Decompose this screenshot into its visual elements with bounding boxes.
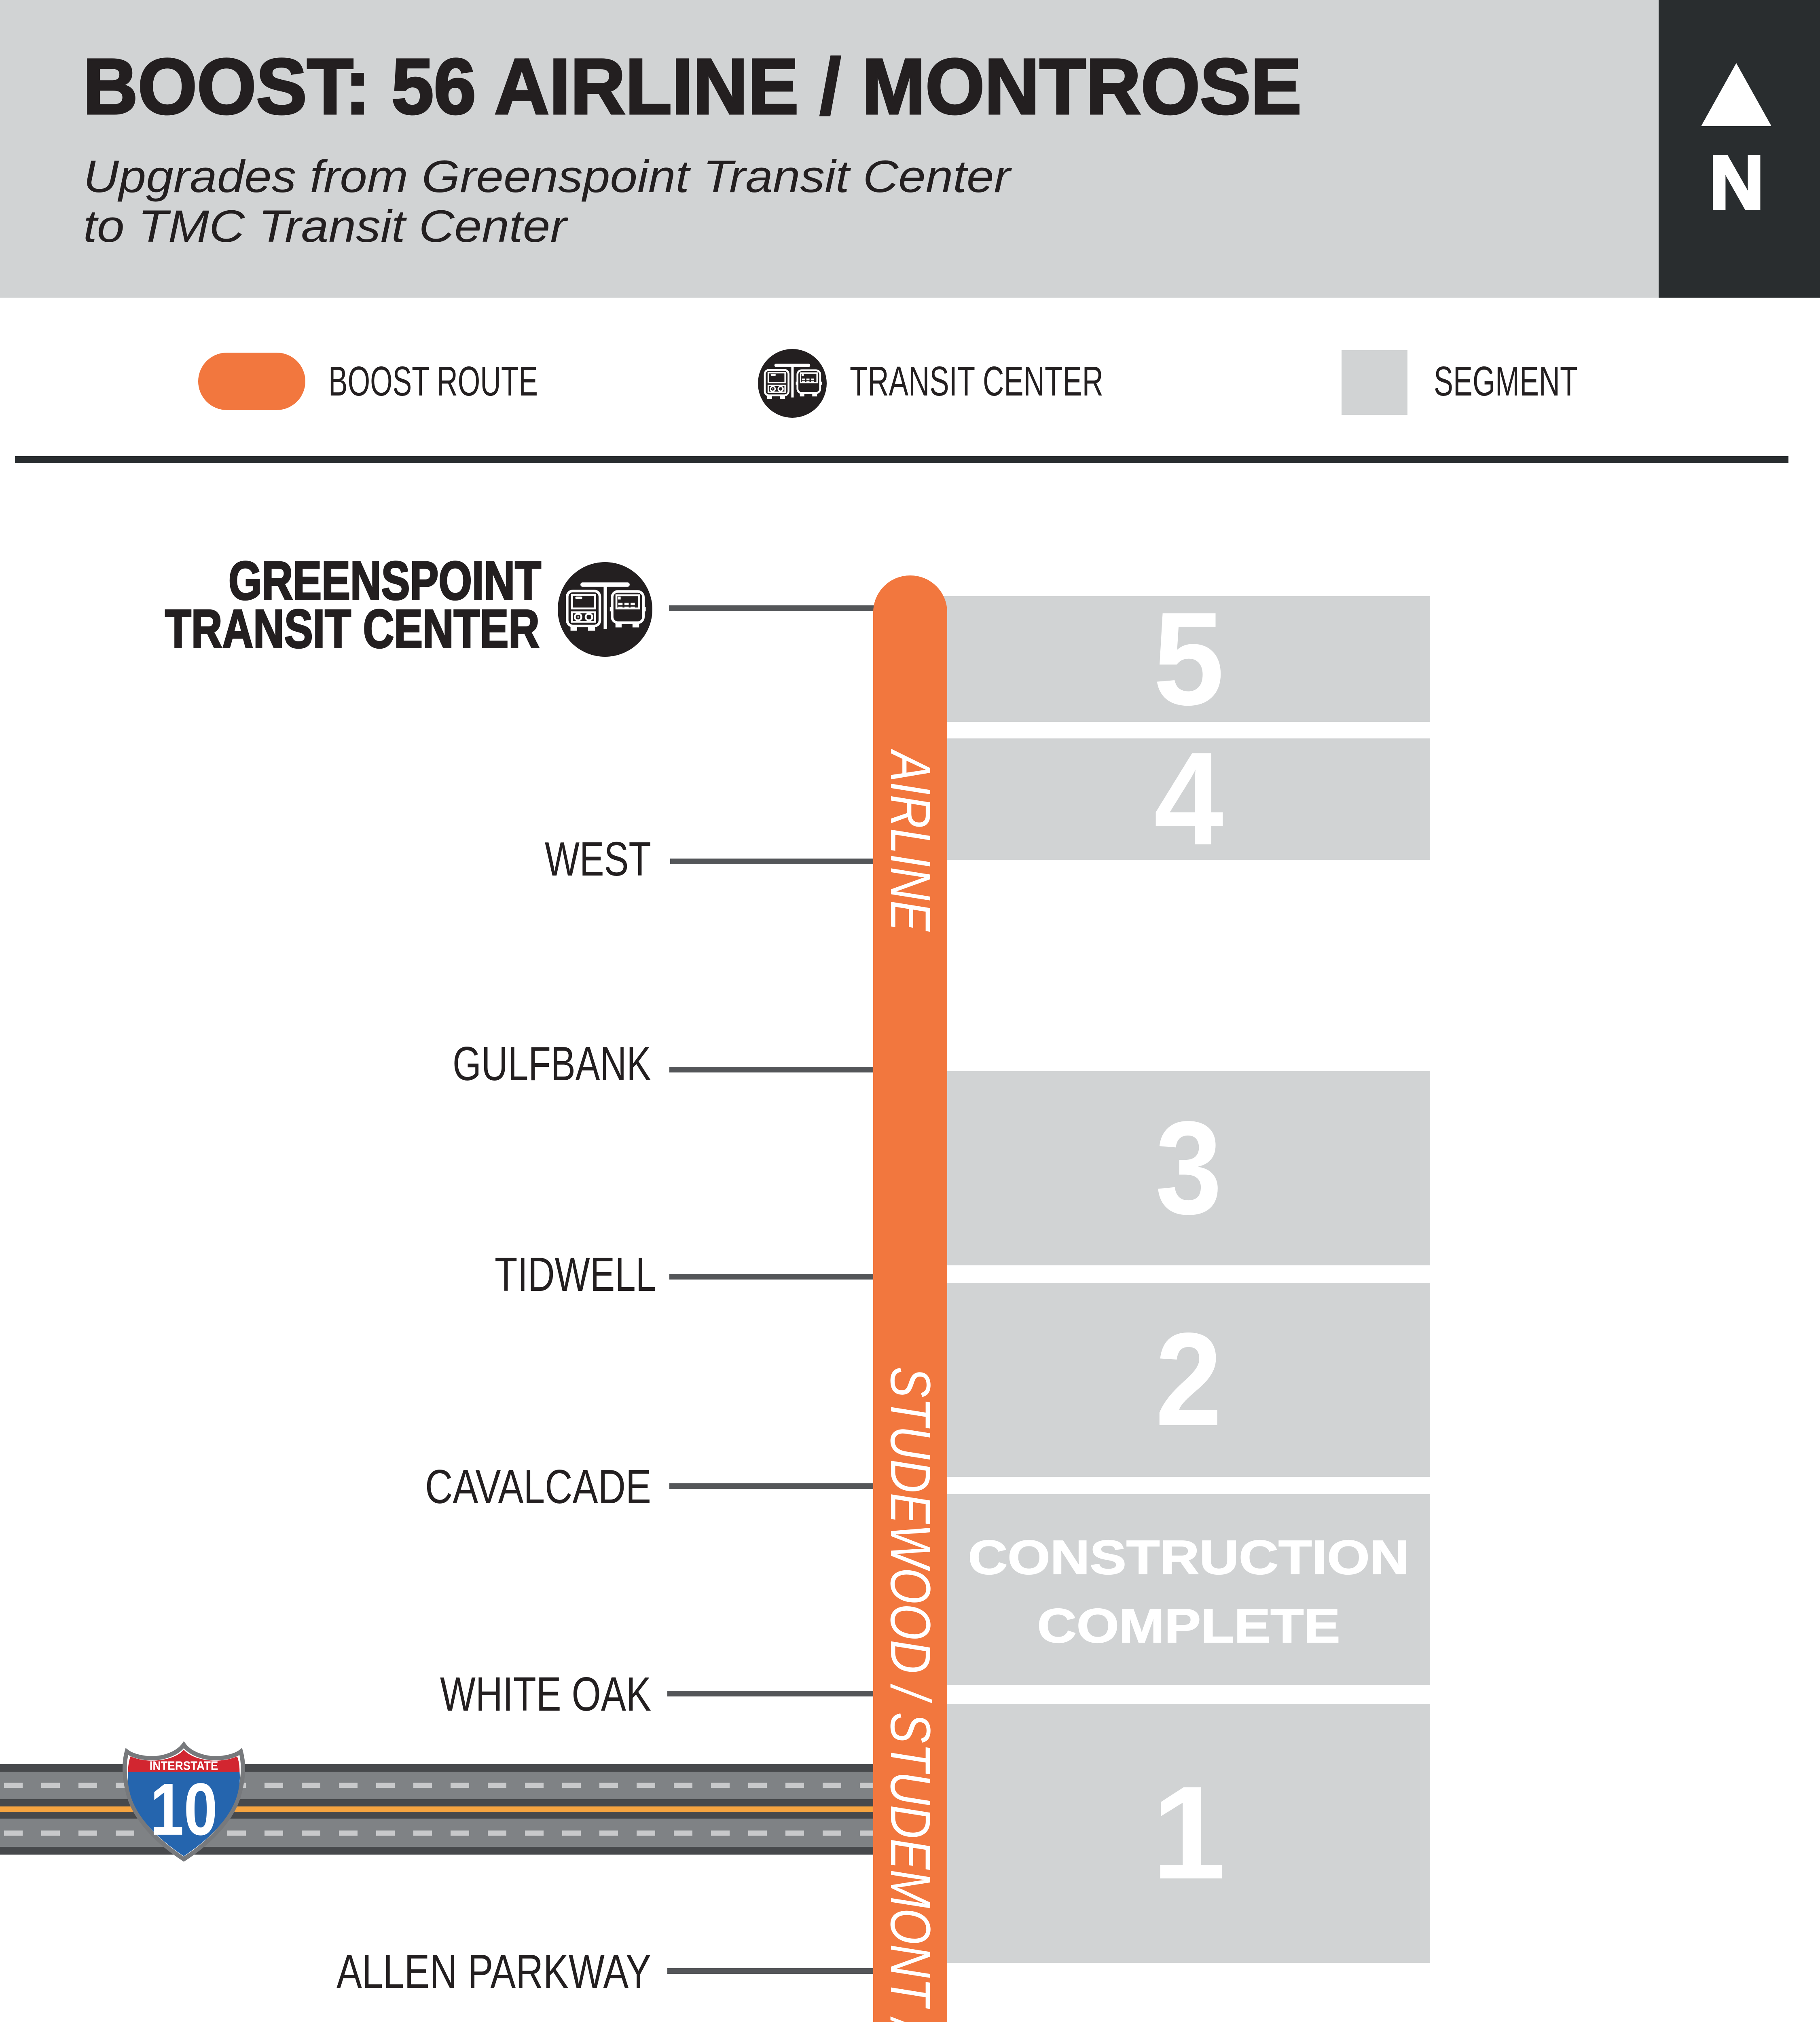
svg-text:CONSTRUCTION: CONSTRUCTION <box>968 1531 1409 1584</box>
svg-text:4: 4 <box>1154 724 1224 873</box>
svg-text:3: 3 <box>1155 1093 1222 1242</box>
svg-text:ALLEN PARKWAY: ALLEN PARKWAY <box>336 1945 651 1999</box>
svg-text:TRANSIT CENTER: TRANSIT CENTER <box>850 358 1103 404</box>
svg-text:BOOST ROUTE: BOOST ROUTE <box>328 358 538 404</box>
svg-text:WEST: WEST <box>545 832 651 886</box>
svg-text:WHITE OAK: WHITE OAK <box>440 1667 651 1721</box>
svg-text:2: 2 <box>1155 1305 1222 1453</box>
svg-text:CAVALCADE: CAVALCADE <box>425 1460 651 1514</box>
svg-text:STUDEWOOD / STUDEMONT / MONTRO: STUDEWOOD / STUDEMONT / MONTROSE <box>879 1366 942 2022</box>
svg-text:AIRLINE: AIRLINE <box>879 749 942 932</box>
svg-text:5: 5 <box>1153 584 1224 733</box>
svg-text:Upgrades from Greenspoint Tran: Upgrades from Greenspoint Transit Center <box>83 151 1012 202</box>
svg-text:to TMC Transit Center: to TMC Transit Center <box>83 201 569 252</box>
svg-text:1: 1 <box>1152 1758 1225 1907</box>
svg-text:10: 10 <box>150 1768 218 1851</box>
svg-text:BOOST: 56 AIRLINE / MONTROSE: BOOST: 56 AIRLINE / MONTROSE <box>83 42 1302 131</box>
svg-text:COMPLETE: COMPLETE <box>1037 1599 1340 1653</box>
svg-text:GULFBANK: GULFBANK <box>453 1037 651 1091</box>
svg-text:TIDWELL: TIDWELL <box>495 1248 656 1301</box>
svg-text:N: N <box>1709 140 1764 225</box>
svg-text:TRANSIT CENTER: TRANSIT CENTER <box>165 599 540 659</box>
svg-text:SEGMENT: SEGMENT <box>1434 358 1578 404</box>
